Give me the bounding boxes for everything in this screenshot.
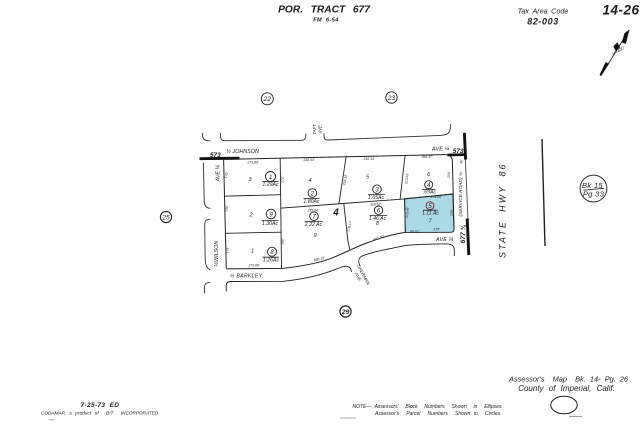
svg-text:AVE ¼: AVE ¼ <box>431 147 450 153</box>
svg-text:273.89': 273.89' <box>247 264 259 268</box>
svg-text:22: 22 <box>263 96 272 103</box>
svg-text:Assessor's Map Bk. 14- Pg. 2: Assessor's Map Bk. 14- Pg. 26 <box>508 375 629 384</box>
svg-text:170': 170' <box>280 176 285 183</box>
svg-text:1.65Ac: 1.65Ac <box>368 195 385 201</box>
svg-text:Pg 33: Pg 33 <box>583 190 605 199</box>
svg-text:8: 8 <box>376 221 379 227</box>
svg-text:AVE.: AVE. <box>318 124 323 135</box>
svg-text:216.34': 216.34' <box>362 157 374 161</box>
svg-text:½WILSON: ½WILSON <box>213 241 220 267</box>
svg-text:165': 165' <box>281 238 286 245</box>
svg-text:4: 4 <box>332 208 339 219</box>
svg-text:200': 200' <box>450 209 454 217</box>
svg-text:POR. TRACT 677: POR. TRACT 677 <box>278 5 371 16</box>
svg-text:Assessor's Parcel Numbers S: Assessor's Parcel Numbers Shown in Circl… <box>374 411 502 417</box>
svg-text:264.37': 264.37' <box>420 155 432 159</box>
svg-text:4: 4 <box>308 178 311 184</box>
svg-text:45': 45' <box>459 159 463 164</box>
svg-text:88.81': 88.81' <box>410 229 420 233</box>
svg-text:274.89': 274.89' <box>429 195 441 199</box>
svg-text:170': 170' <box>433 227 440 231</box>
svg-text:FM 6-54: FM 6-54 <box>313 18 339 24</box>
svg-text:273.89': 273.89' <box>246 160 258 164</box>
svg-text:County of Imperial, Calif.: County of Imperial, Calif. <box>518 384 615 393</box>
svg-text:STATE HWY 86: STATE HWY 86 <box>498 162 508 258</box>
svg-text:318.34': 318.34' <box>303 158 314 162</box>
svg-text:7-25-73 ED: 7-25-73 ED <box>81 402 120 409</box>
svg-text:Tax Area Code: Tax Area Code <box>518 7 569 16</box>
svg-text:2.22 Ac: 2.22 Ac <box>304 222 323 228</box>
svg-text:½ JOHNSON: ½ JOHNSON <box>227 148 259 155</box>
svg-text:AVE ¼: AVE ¼ <box>435 237 454 243</box>
svg-text:CODAMAP, a product of BIT IN: CODAMAP, a product of BIT INCORPORATED <box>41 411 159 416</box>
svg-text:1.29Ac: 1.29Ac <box>262 182 279 188</box>
svg-text:(SERVICE ROAD) ¼: (SERVICE ROAD) ¼ <box>458 172 463 216</box>
svg-text:AVE ¼: AVE ¼ <box>216 165 222 183</box>
svg-text:150': 150' <box>447 171 451 178</box>
svg-text:1: 1 <box>251 249 254 255</box>
svg-text:TAFT: TAFT <box>312 124 317 135</box>
svg-text:318.67': 318.67' <box>370 203 381 207</box>
svg-text:29: 29 <box>341 309 350 316</box>
svg-text:1.30Ac: 1.30Ac <box>262 221 279 227</box>
svg-text:NOTE— Assessors' Block Numbe: NOTE— Assessors' Block Numbers Shown in … <box>353 404 503 410</box>
svg-text:1.26Ac: 1.26Ac <box>263 258 280 264</box>
svg-text:9: 9 <box>313 233 316 239</box>
svg-text:82-003: 82-003 <box>527 17 559 27</box>
svg-text:677 ¼: 677 ¼ <box>460 224 467 243</box>
svg-text:1.80Ac: 1.80Ac <box>303 199 320 205</box>
svg-text:14-26: 14-26 <box>602 3 639 18</box>
svg-text:1.11 Ac: 1.11 Ac <box>422 210 439 216</box>
svg-text:2: 2 <box>310 191 315 197</box>
svg-text:½ BARKLEY: ½ BARKLEY <box>230 272 263 279</box>
svg-text:1: 1 <box>269 175 272 181</box>
svg-text:215.84': 215.84' <box>306 208 318 212</box>
svg-text:23: 23 <box>387 95 396 102</box>
svg-text:25: 25 <box>161 214 170 221</box>
